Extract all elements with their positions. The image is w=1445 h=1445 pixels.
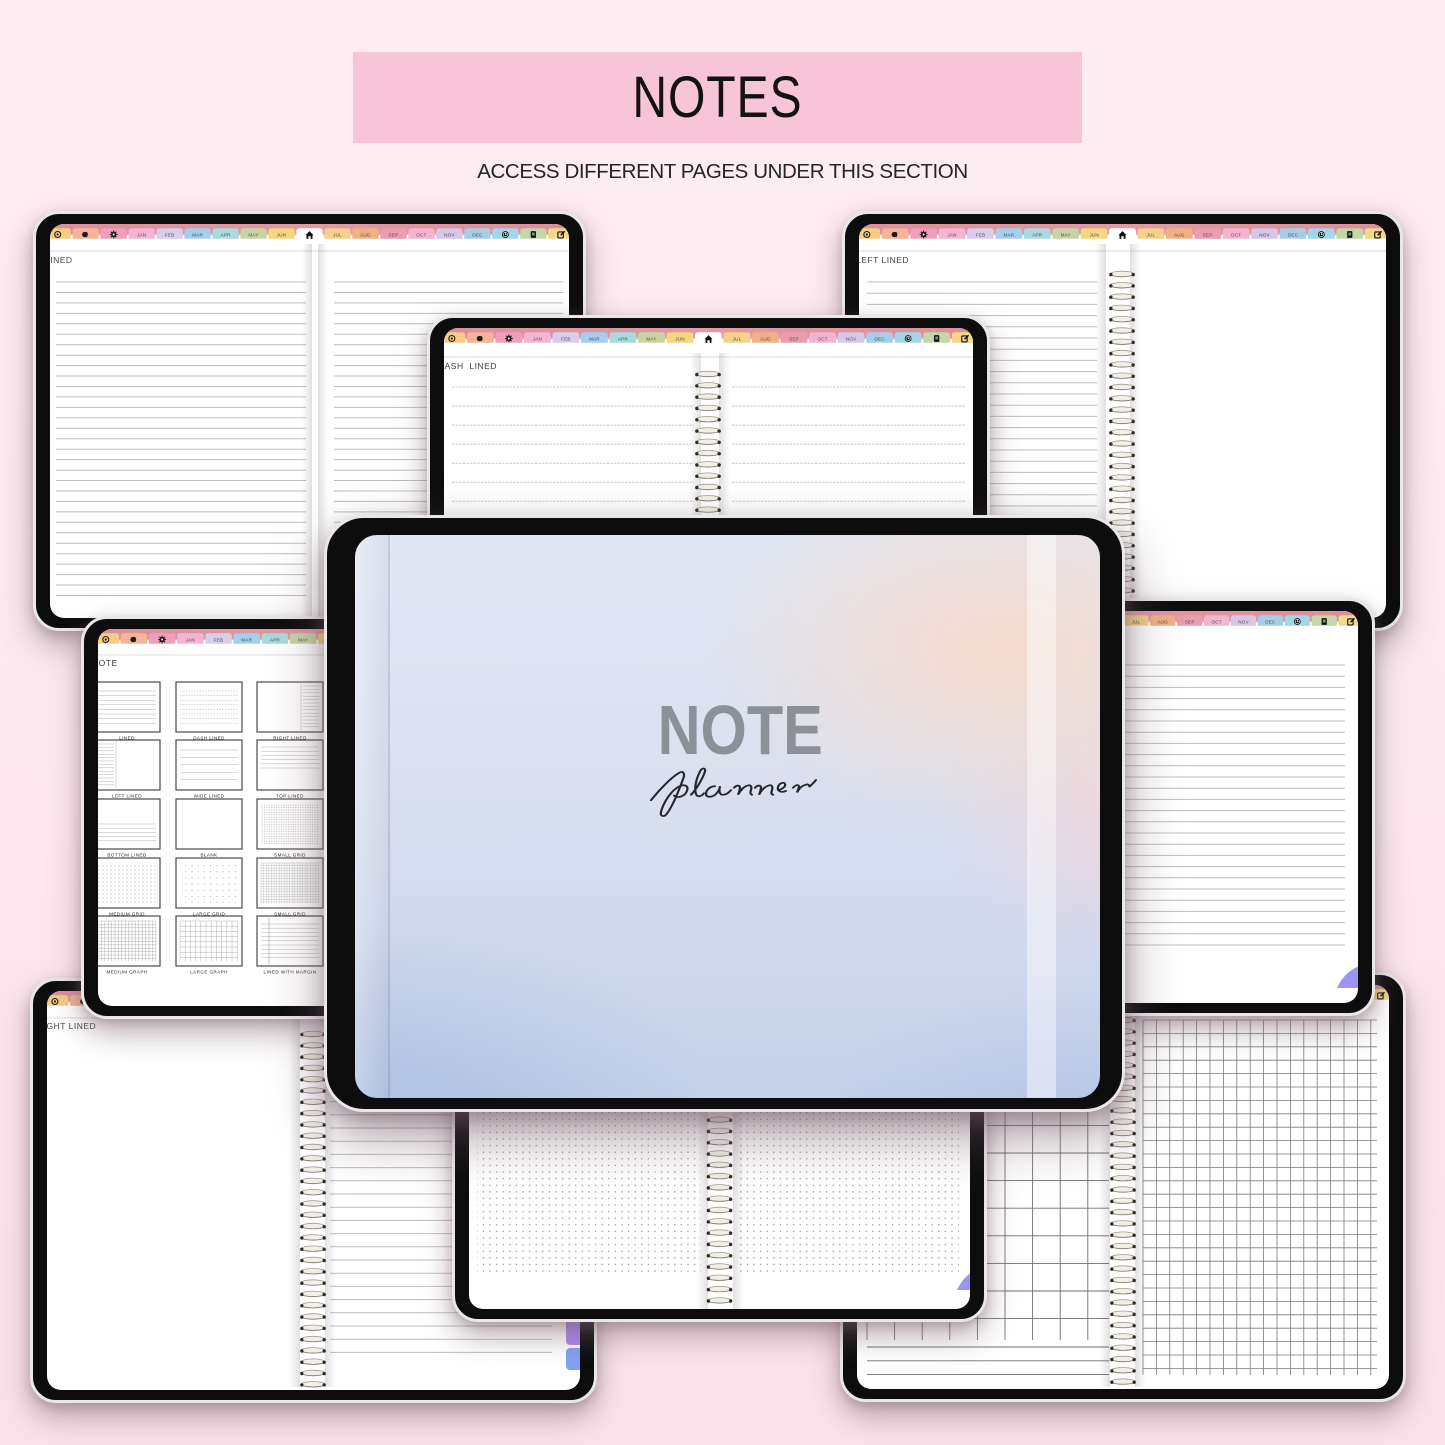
svg-text:MEDIUM GRID: MEDIUM GRID [109,912,145,917]
svg-text:BOTTOM LINED: BOTTOM LINED [107,853,146,858]
svg-text:LARGE GRID: LARGE GRID [193,912,226,917]
svg-text:RIGHT LINED: RIGHT LINED [273,736,307,741]
svg-text:LINED WITH MARGIN: LINED WITH MARGIN [264,970,317,975]
svg-text:DASH LINED: DASH LINED [193,736,225,741]
svg-text:WIDE LINED: WIDE LINED [194,794,225,799]
svg-text:LINED: LINED [119,736,135,741]
svg-text:MEDIUM GRAPH: MEDIUM GRAPH [106,970,147,975]
svg-text:BLANK: BLANK [200,853,218,858]
svg-text:SMALL GRID: SMALL GRID [274,912,306,917]
svg-text:TOP LINED: TOP LINED [276,794,304,799]
svg-text:LARGE GRAPH: LARGE GRAPH [190,970,228,975]
svg-text:SMALL GRID: SMALL GRID [274,853,306,858]
svg-text:LEFT LINED: LEFT LINED [112,794,142,799]
